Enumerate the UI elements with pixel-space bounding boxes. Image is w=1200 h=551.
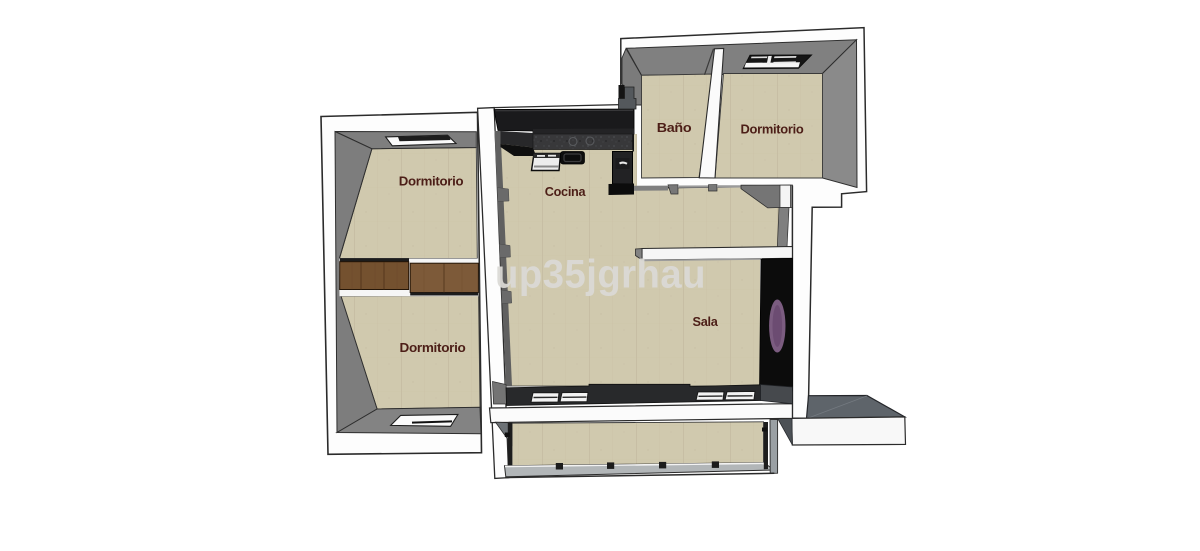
svg-text:Dormitorio: Dormitorio <box>400 340 466 355</box>
svg-text:Cocina: Cocina <box>545 184 587 199</box>
svg-text:Dormitorio: Dormitorio <box>399 174 464 189</box>
svg-text:Baño: Baño <box>657 120 692 135</box>
svg-text:Dormitorio: Dormitorio <box>741 122 804 137</box>
svg-text:up35jgrhau: up35jgrhau <box>495 253 706 297</box>
svg-text:Sala: Sala <box>693 315 719 329</box>
